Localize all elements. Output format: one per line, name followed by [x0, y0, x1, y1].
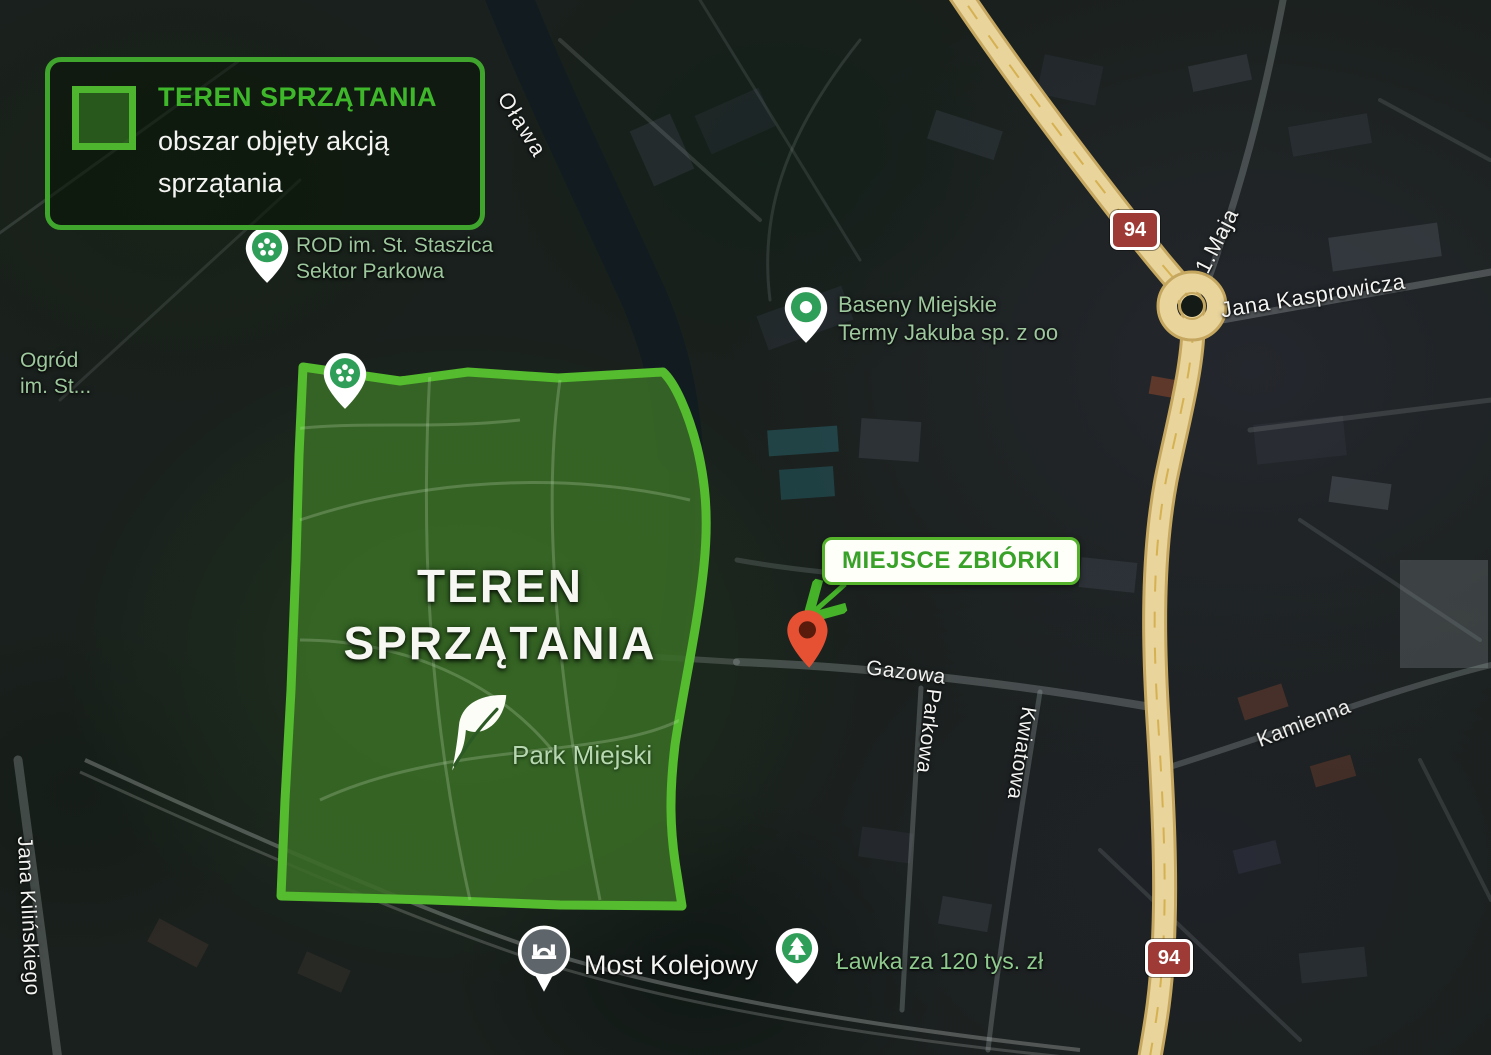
poi-rod-line2: Sektor Parkowa [296, 259, 493, 285]
poi-ogrod-line1: Ogród [20, 348, 91, 374]
poi-label-lawka: Ławka za 120 tys. zł [836, 948, 1043, 975]
legend-title: TEREN SPRZĄTANIA [158, 82, 437, 113]
roundabout [1158, 272, 1226, 340]
legend-text-block: TEREN SPRZĄTANIA obszar objęty akcją spr… [158, 82, 437, 205]
legend-box: TEREN SPRZĄTANIA obszar objęty akcją spr… [45, 57, 485, 230]
tree-icon [774, 927, 820, 985]
cleanup-area-title: TEREN SPRZĄTANIA [300, 558, 700, 672]
legend-line1: obszar objęty akcją [158, 121, 437, 163]
pool-pin-baseny[interactable] [783, 286, 829, 349]
map-canvas[interactable]: TEREN SPRZĄTANIA obszar objęty akcją spr… [0, 0, 1491, 1055]
tree-pin-lawka[interactable] [774, 927, 820, 990]
pool-icon [783, 286, 829, 344]
bridge-pin-most[interactable] [516, 925, 572, 998]
poi-baseny-line1: Baseny Miejskie [838, 291, 1058, 319]
red-map-pin[interactable] [782, 607, 833, 676]
road-shield-94-top: 94 [1110, 210, 1160, 250]
garden-icon [244, 226, 290, 284]
poi-label-baseny: Baseny Miejskie Termy Jakuba sp. z oo [838, 291, 1058, 346]
cleanup-area-swatch-icon [72, 86, 136, 150]
red-pin-icon [782, 607, 833, 671]
garden-icon [322, 352, 368, 410]
poi-label-rod: ROD im. St. Staszica Sektor Parkowa [296, 233, 493, 286]
garden-pin-ogrod[interactable] [322, 352, 368, 415]
poi-label-most-kolejowy: Most Kolejowy [584, 950, 758, 981]
poi-baseny-line2: Termy Jakuba sp. z oo [838, 319, 1058, 347]
cleanup-area-title-line1: TEREN [300, 558, 700, 615]
cleanup-area-title-line2: SPRZĄTANIA [300, 615, 700, 672]
legend-line2: sprzątania [158, 163, 437, 205]
road-shield-94-bottom: 94 [1145, 939, 1193, 977]
park-name-label: Park Miejski [512, 740, 652, 771]
leaf-icon [432, 688, 523, 783]
bridge-icon [516, 925, 572, 993]
garden-pin-rod[interactable] [244, 226, 290, 289]
poi-label-ogrod: Ogród im. St... [20, 348, 91, 401]
meeting-point-callout[interactable]: MIEJSCE ZBIÓRKI [822, 537, 1080, 585]
poi-ogrod-line2: im. St... [20, 374, 91, 400]
poi-rod-line1: ROD im. St. Staszica [296, 233, 493, 259]
